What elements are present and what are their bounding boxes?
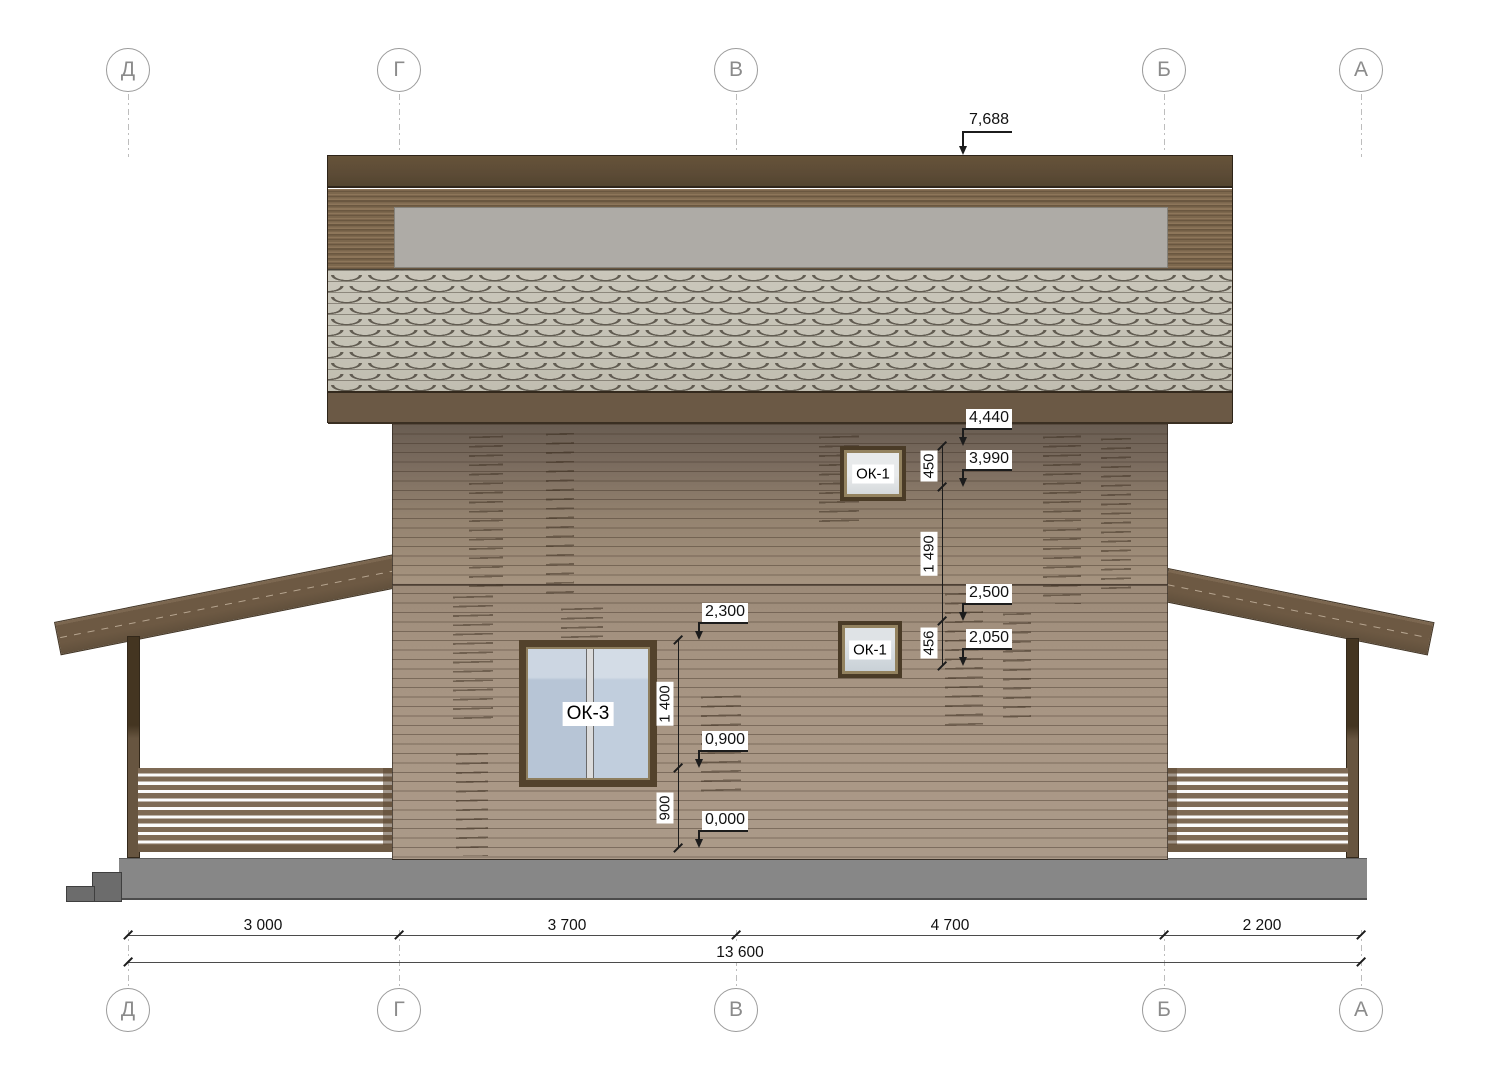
right-porch-railing — [1168, 768, 1348, 852]
right-railing-bottom-rail — [1168, 845, 1348, 852]
window-tag-ok3: ОК-3 — [563, 702, 614, 726]
roof-fascia-top — [328, 156, 1232, 188]
right-beam-edge-line — [1168, 584, 1429, 638]
leader-line — [962, 648, 1012, 650]
plank-joint-marks — [546, 426, 574, 596]
level-value: 0,000 — [702, 811, 748, 830]
leader-line — [962, 131, 964, 147]
dim-value: 3 700 — [545, 917, 590, 935]
roof-shingles — [328, 269, 1232, 391]
axis-bubble-bottom-v: В — [714, 988, 758, 1032]
dim-value: 456 — [921, 627, 938, 658]
window-ok3: ОК-3 — [519, 640, 657, 787]
axis-bubble-top-d: Д — [106, 48, 150, 92]
down-arrow-icon — [695, 631, 703, 640]
leader-line — [698, 622, 748, 624]
axis-line-top-b — [1164, 94, 1165, 154]
window-ok1-lower: ОК-1 — [838, 621, 902, 678]
roof — [327, 155, 1233, 423]
dim-line-spans — [128, 935, 1361, 936]
left-beam-edge-line — [60, 570, 394, 638]
axis-bubble-bottom-b: Б — [1142, 988, 1186, 1032]
down-arrow-icon — [695, 839, 703, 848]
foundation — [119, 858, 1367, 900]
window-ok1-upper: ОК-1 — [840, 446, 906, 501]
dim-value: 3 000 — [241, 917, 286, 935]
level-value: 4,440 — [966, 409, 1012, 428]
left-railing-bottom-rail — [138, 845, 394, 852]
left-railing-end — [383, 768, 392, 852]
down-arrow-icon — [959, 657, 967, 666]
house-wall — [392, 423, 1168, 860]
vertical-dim-line-ok3 — [678, 640, 679, 848]
axis-bubble-top-a: А — [1339, 48, 1383, 92]
down-arrow-icon — [695, 759, 703, 768]
dim-value: 2 200 — [1240, 917, 1285, 935]
dim-value: 450 — [921, 450, 938, 481]
axis-line-top-g — [399, 94, 400, 154]
axis-bubble-top-v: В — [714, 48, 758, 92]
level-value: 0,900 — [702, 731, 748, 750]
down-arrow-icon — [959, 437, 967, 446]
entry-step-lower — [66, 886, 95, 902]
leader-line — [962, 131, 1012, 133]
level-value: 2,500 — [966, 584, 1012, 603]
axis-bubble-bottom-a: А — [1339, 988, 1383, 1032]
level-value: 7,688 — [966, 111, 1012, 130]
leader-line — [962, 428, 1012, 430]
axis-line-top-a — [1361, 94, 1362, 157]
window-tag-ok1-lower: ОК-1 — [849, 640, 891, 659]
plank-joint-marks — [453, 589, 493, 724]
plank-joint-marks — [945, 586, 983, 726]
left-porch-beam — [54, 554, 400, 655]
plank-joint-marks — [1101, 431, 1131, 591]
vertical-dim-line-windows — [942, 446, 943, 666]
down-arrow-icon — [959, 612, 967, 621]
leader-line — [698, 830, 748, 832]
dim-value: 4 700 — [928, 917, 973, 935]
dim-value-total: 13 600 — [713, 944, 766, 962]
plank-joint-marks — [456, 746, 488, 856]
axis-line-bottom-b — [1164, 930, 1165, 987]
dim-value: 1 400 — [657, 682, 674, 726]
entry-step-upper — [92, 872, 122, 902]
level-value: 3,990 — [966, 450, 1012, 469]
right-railing-end — [1168, 768, 1177, 852]
leader-line — [962, 603, 1012, 605]
dim-value: 1 490 — [921, 532, 938, 576]
dim-line-total — [128, 962, 1361, 963]
right-porch-beam — [1161, 568, 1434, 656]
axis-bubble-top-b: Б — [1142, 48, 1186, 92]
dim-value: 900 — [657, 792, 674, 823]
axis-line-top-d — [128, 94, 129, 157]
axis-line-top-v — [736, 94, 737, 154]
window-tag-ok1-upper: ОК-1 — [852, 464, 894, 483]
plank-joint-marks — [1003, 606, 1031, 721]
elevation-drawing: Д Г В Б А — [0, 0, 1497, 1080]
down-arrow-icon — [959, 146, 967, 155]
axis-line-bottom-g — [399, 930, 400, 987]
plank-joint-marks — [1043, 429, 1081, 604]
axis-bubble-bottom-d: Д — [106, 988, 150, 1032]
left-porch-railing — [138, 768, 394, 852]
axis-bubble-bottom-g: Г — [377, 988, 421, 1032]
roof-fascia-bottom — [328, 391, 1232, 424]
down-arrow-icon — [959, 478, 967, 487]
leader-line — [698, 750, 748, 752]
level-value: 2,050 — [966, 629, 1012, 648]
level-value: 2,300 — [702, 603, 748, 622]
leader-line — [962, 469, 1012, 471]
plank-joint-marks — [469, 429, 503, 587]
axis-bubble-top-g: Г — [377, 48, 421, 92]
roof-gutter-band — [394, 207, 1168, 268]
